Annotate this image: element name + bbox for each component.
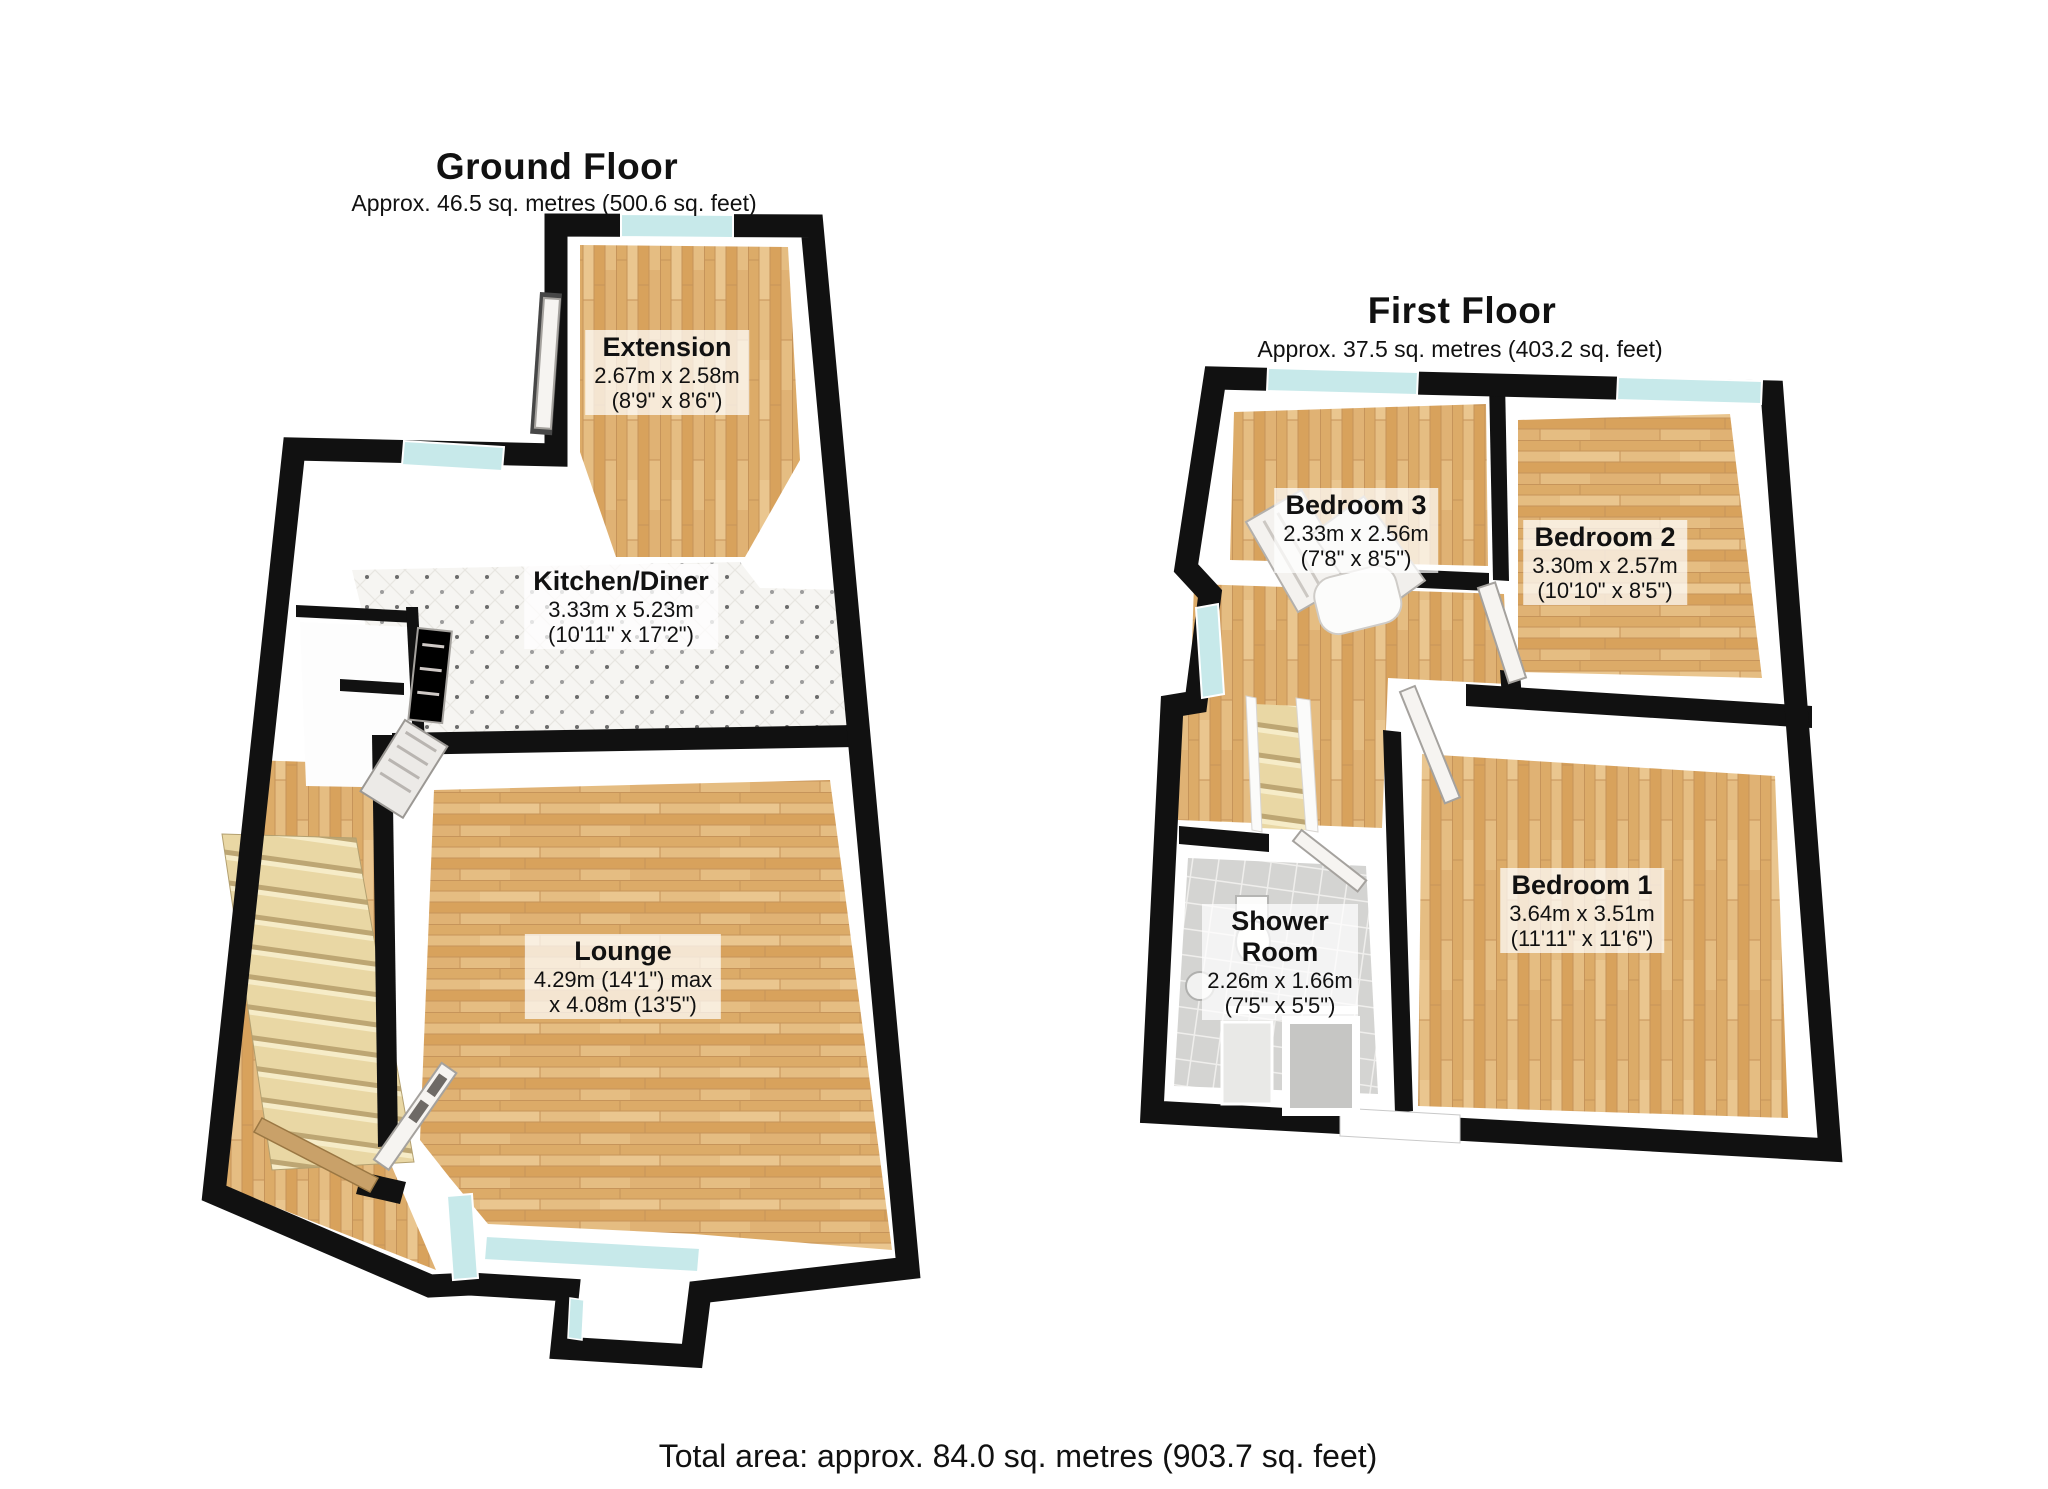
lounge-name: Lounge	[534, 936, 712, 967]
bedroom2-dims-metric: 3.30m x 2.57m	[1532, 553, 1678, 578]
landing-side-window	[1196, 604, 1224, 698]
first-floor-plan	[1152, 368, 1830, 1150]
bedroom1-dims-metric: 3.64m x 3.51m	[1509, 901, 1655, 926]
extension-label: Extension 2.67m x 2.58m (8'9" x 8'6")	[585, 330, 749, 415]
extension-dims-metric: 2.67m x 2.58m	[594, 363, 740, 388]
shower-room-name: Shower Room	[1206, 906, 1354, 968]
bedroom3-dims-imperial: (7'8" x 8'5")	[1283, 546, 1429, 571]
kitchen-dims-metric: 3.33m x 5.23m	[533, 597, 709, 622]
lounge-label: Lounge 4.29m (14'1") max x 4.08m (13'5")	[525, 934, 721, 1019]
first-floor-title: First Floor	[1368, 290, 1556, 332]
extension-name: Extension	[594, 332, 740, 363]
shower-room-dims-metric: 2.26m x 1.66m	[1206, 968, 1354, 993]
bedroom2-label: Bedroom 2 3.30m x 2.57m (10'10" x 8'5")	[1523, 520, 1687, 605]
floorplan-drawing	[0, 0, 2048, 1489]
bedroom2-dims-imperial: (10'10" x 8'5")	[1532, 578, 1678, 603]
floorplan-page: { "ground_floor": { "title": "Ground Flo…	[0, 0, 2048, 1489]
total-area-note: Total area: approx. 84.0 sq. metres (903…	[659, 1438, 1378, 1475]
porch-window	[568, 1298, 584, 1340]
extension-window	[621, 214, 733, 238]
shower-room-label: Shower Room 2.26m x 1.66m (7'5" x 5'5")	[1202, 904, 1358, 1020]
shower-enclosure	[1222, 1006, 1360, 1116]
kitchen-dims-imperial: (10'11" x 17'2")	[533, 622, 709, 647]
bay-side-window	[447, 1194, 478, 1280]
bedroom1-name: Bedroom 1	[1509, 870, 1655, 901]
bedroom1-label: Bedroom 1 3.64m x 3.51m (11'11" x 11'6")	[1500, 868, 1664, 953]
extension-dims-imperial: (8'9" x 8'6")	[594, 388, 740, 413]
ground-floor-plan	[214, 214, 908, 1356]
ground-floor-title: Ground Floor	[436, 146, 678, 188]
first-floor-subtitle: Approx. 37.5 sq. metres (403.2 sq. feet)	[1257, 336, 1662, 363]
bedroom3-name: Bedroom 3	[1283, 490, 1429, 521]
bedroom3-dims-metric: 2.33m x 2.56m	[1283, 521, 1429, 546]
bedroom1-dims-imperial: (11'11" x 11'6")	[1509, 926, 1655, 951]
kitchen-name: Kitchen/Diner	[533, 566, 709, 597]
lounge-dims-metric: 4.29m (14'1") max	[534, 967, 712, 992]
bedroom3-label: Bedroom 3 2.33m x 2.56m (7'8" x 8'5")	[1274, 488, 1438, 573]
bedroom2-name: Bedroom 2	[1532, 522, 1678, 553]
bedroom3-window	[1267, 368, 1418, 395]
bedroom2-window	[1617, 377, 1762, 404]
ground-floor-subtitle: Approx. 46.5 sq. metres (500.6 sq. feet)	[351, 190, 756, 217]
shower-room-dims-imperial: (7'5" x 5'5")	[1206, 993, 1354, 1018]
kitchen-window	[402, 441, 504, 471]
kitchen-label: Kitchen/Diner 3.33m x 5.23m (10'11" x 17…	[524, 564, 718, 649]
lounge-dims-imperial: x 4.08m (13'5")	[534, 992, 712, 1017]
